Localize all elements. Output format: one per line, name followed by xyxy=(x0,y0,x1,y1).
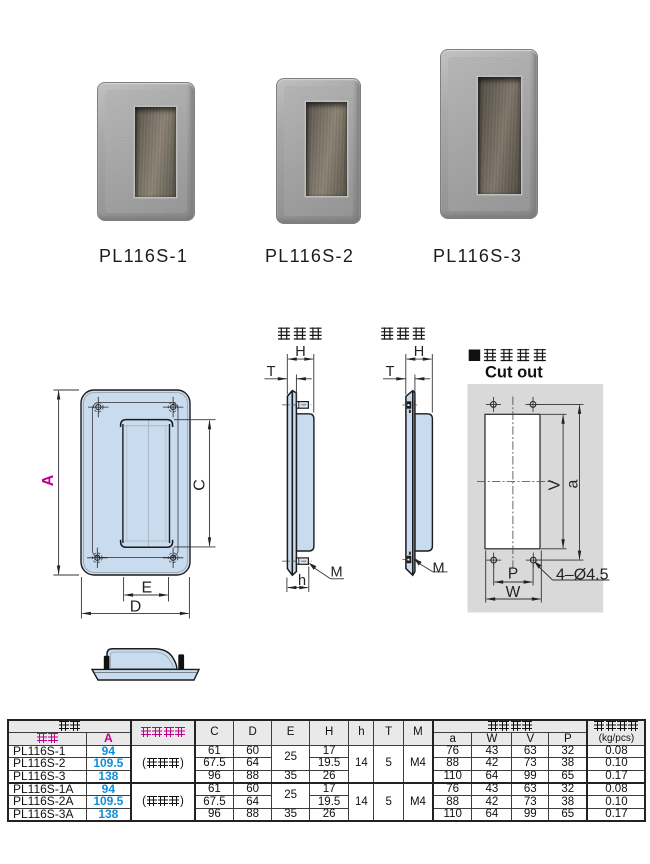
svg-text:4–Ø4.5: 4–Ø4.5 xyxy=(556,567,609,584)
svg-text:W: W xyxy=(506,584,521,601)
svg-text:C: C xyxy=(192,479,209,491)
svg-text:T: T xyxy=(267,364,276,380)
svg-text:M: M xyxy=(331,565,343,581)
svg-text:A: A xyxy=(40,474,57,486)
svg-text:a: a xyxy=(565,479,582,488)
svg-text:H: H xyxy=(295,344,305,360)
svg-text:M: M xyxy=(433,560,445,576)
svg-text:h: h xyxy=(298,573,306,589)
svg-text:E: E xyxy=(141,580,152,597)
svg-text:T: T xyxy=(386,364,395,380)
svg-text:H: H xyxy=(414,344,424,360)
svg-text:P: P xyxy=(508,566,518,583)
svg-text:V: V xyxy=(547,479,564,490)
svg-text:D: D xyxy=(130,599,142,616)
svg-text:Cut out: Cut out xyxy=(485,364,543,382)
